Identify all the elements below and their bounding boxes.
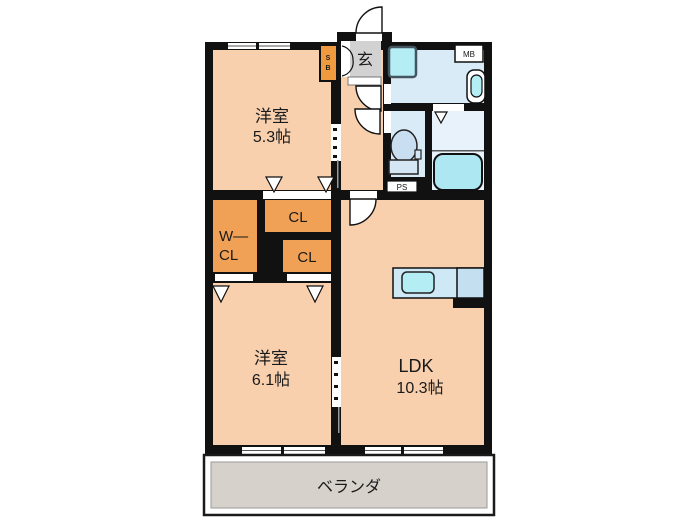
door-track-dash	[334, 373, 338, 376]
shoe-box-label-b: B	[325, 65, 330, 72]
wcl-label-line2: CL	[219, 247, 238, 264]
meter-box-label: MB	[463, 50, 475, 59]
bathtub	[434, 154, 482, 190]
door-track-dash	[334, 397, 338, 400]
bedroom2-label: 洋室	[254, 349, 288, 368]
bedroom1-label: 洋室	[255, 107, 289, 126]
door-track-line	[337, 160, 339, 188]
floor-plan: 洋室 5.3帖 洋室 6.1帖 LDK 10.3帖 CL CL W— CL 玄 …	[0, 0, 700, 525]
wall-mid-band	[205, 190, 492, 200]
door-track-dash	[334, 361, 338, 364]
bath-floor-line	[432, 150, 484, 152]
door-track-dash	[333, 155, 337, 158]
closet-bottom-door-gap	[287, 274, 331, 281]
wall-left	[205, 42, 213, 455]
wall-right	[484, 42, 492, 455]
door-track-dash	[333, 146, 337, 149]
ldk-door-gap	[350, 191, 377, 199]
pipe-space-label: PS	[397, 183, 408, 192]
room-ldk	[341, 200, 484, 445]
wcl-label-line1: W—	[219, 228, 248, 245]
kitchen-counter-stub-wall	[453, 298, 492, 308]
washing-machine-pan	[389, 47, 416, 77]
door-track-dash	[333, 137, 337, 140]
closet-top-label: CL	[288, 209, 307, 226]
toilet-bowl	[391, 130, 417, 162]
entrance-door-gap	[356, 33, 382, 41]
closet-top-door-gap	[263, 191, 331, 199]
shoe-box	[320, 45, 337, 81]
door-track-dash	[334, 385, 338, 388]
bath-door-gap	[433, 104, 464, 111]
closet-bottom-label: CL	[297, 249, 316, 266]
entrance-step	[348, 77, 381, 85]
entrance-label: 玄	[357, 51, 373, 69]
washroom-door-gap	[384, 84, 391, 104]
bedroom2-size: 6.1帖	[252, 371, 290, 389]
door-track-dash	[333, 128, 337, 131]
wcl-door-gap	[215, 274, 253, 281]
ldk-label: LDK	[398, 356, 433, 376]
bedroom1-size: 5.3帖	[253, 128, 291, 146]
window-mullion	[256, 43, 259, 49]
vanity-sink	[471, 75, 482, 97]
veranda-label: ベランダ	[317, 478, 381, 496]
kitchen-counter-end	[457, 268, 484, 298]
window-mullion	[401, 447, 404, 454]
ldk-size: 10.3帖	[396, 379, 443, 397]
wall-below-topcl	[265, 232, 331, 240]
wall-wcl-cl	[257, 200, 265, 232]
toilet-tank	[389, 160, 418, 174]
toilet-door-gap	[384, 111, 391, 133]
door-track-line	[338, 407, 340, 433]
toilet-handle	[415, 150, 421, 159]
kitchen-sink	[402, 272, 434, 293]
window-mullion	[281, 447, 284, 454]
shoe-box-label-s: S	[326, 55, 331, 62]
